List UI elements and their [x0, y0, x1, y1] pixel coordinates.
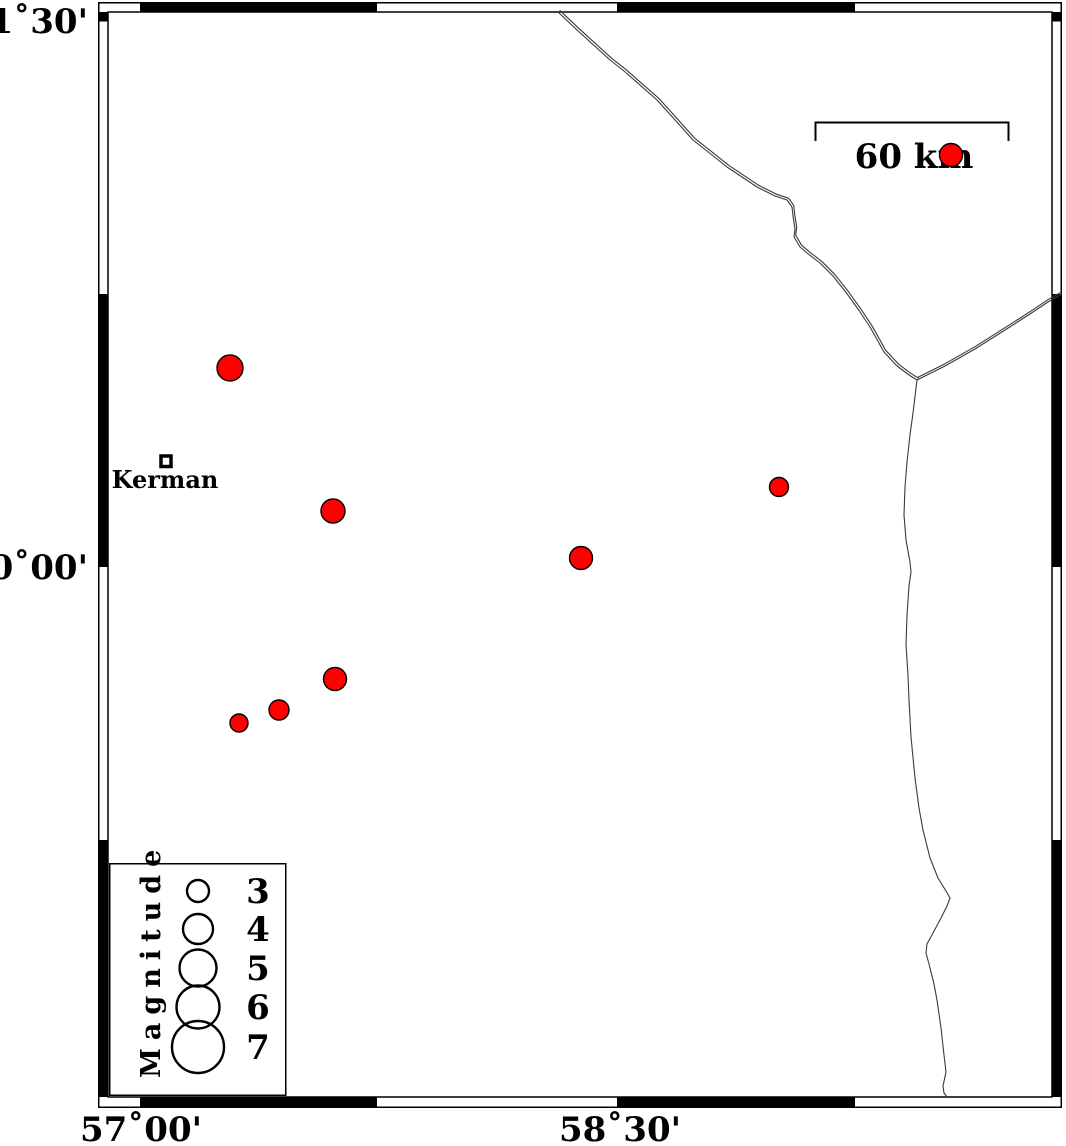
border-line-east-twin: [917, 292, 1062, 378]
lat-label-top: 31˚30': [0, 2, 88, 42]
earthquake-marker: [324, 668, 347, 691]
lon-label-right: 58˚30': [559, 1110, 681, 1146]
frame-band-segment: [617, 1098, 855, 1108]
frame-band-segment: [140, 1098, 377, 1108]
earthquake-marker: [770, 478, 789, 497]
frame-band-segment: [99, 840, 109, 1097]
earthquake-marker: [321, 499, 345, 523]
seismicity-map-page: 60 km Kerman Magnitude 34567 31˚30' 30˚0…: [0, 0, 1066, 1146]
border-line-south: [904, 380, 950, 1097]
earthquake-marker: [230, 714, 248, 732]
earthquake-marker: [570, 547, 593, 570]
frame-band-segment: [99, 12, 109, 22]
legend-magnitude-label: 3: [246, 872, 270, 912]
lon-label-left: 57˚00': [80, 1110, 202, 1146]
legend-labels: 34567: [246, 872, 270, 1068]
border-line-north-twin: [560, 10, 919, 378]
frame-band-segment: [1052, 294, 1062, 567]
city-label: Kerman: [112, 465, 219, 494]
scale-bar: 60 km: [816, 123, 1009, 178]
frame-band-segment: [140, 3, 377, 13]
legend-title: Magnitude: [136, 842, 167, 1078]
earthquake-marker: [217, 355, 243, 381]
frame-band-segment: [1052, 840, 1062, 1097]
lat-label-middle: 30˚00': [0, 548, 88, 588]
border-lines: [558, 10, 1062, 1097]
earthquake-marker: [940, 144, 963, 167]
earthquake-marker: [269, 700, 289, 720]
magnitude-legend: Magnitude 34567: [110, 842, 286, 1096]
legend-magnitude-label: 6: [246, 988, 270, 1028]
frame-band-segment: [99, 294, 109, 567]
frame-band-segment: [617, 3, 855, 13]
seismicity-map: 60 km Kerman Magnitude 34567 31˚30' 30˚0…: [0, 0, 1066, 1146]
earthquake-layer: [217, 144, 963, 733]
border-line-north: [558, 12, 917, 380]
city-marker-kerman: Kerman: [112, 456, 219, 494]
legend-magnitude-label: 4: [246, 910, 270, 950]
frame-band-segment: [1052, 12, 1062, 22]
legend-magnitude-label: 5: [246, 949, 270, 989]
legend-magnitude-label: 7: [246, 1028, 270, 1068]
